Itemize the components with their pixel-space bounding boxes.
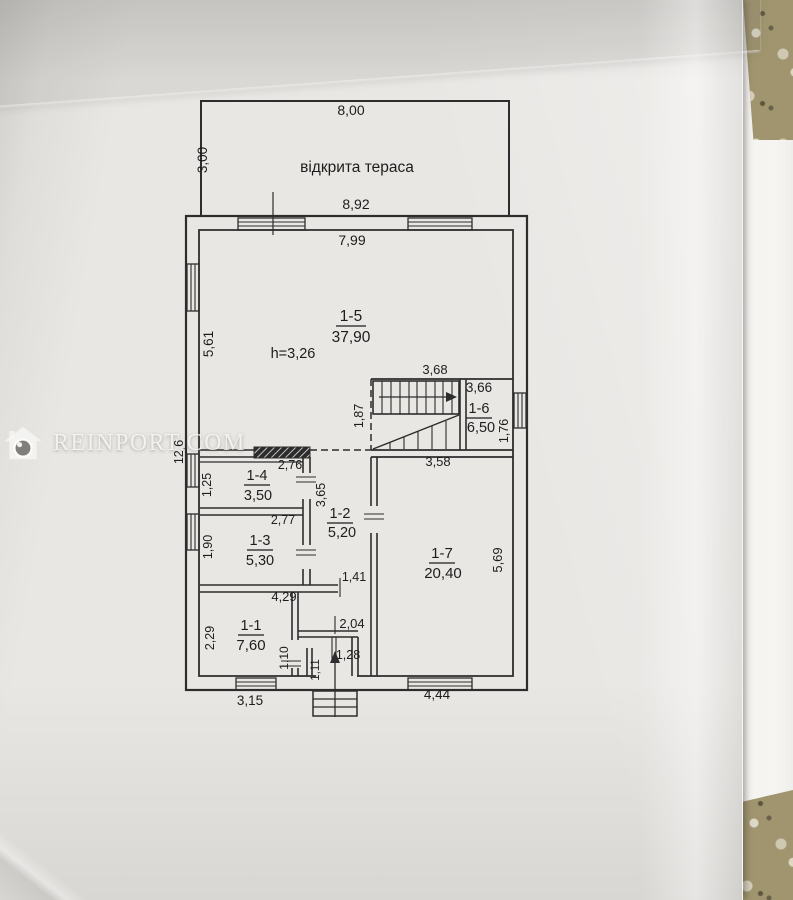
- room-1-6-area: 6,50: [467, 420, 495, 436]
- dim-r17-right: 5,69: [490, 547, 505, 572]
- room-1-2-area: 5,20: [328, 525, 356, 541]
- room-1-7-area: 20,40: [424, 565, 462, 582]
- dim-left-height: 5,61: [201, 331, 216, 357]
- watermark-text: REINPORT.COM: [53, 430, 246, 457]
- room-1-4-id: 1-4: [247, 468, 268, 484]
- dim-inner-top: 7,99: [338, 232, 365, 248]
- room-1-5-area: 37,90: [332, 329, 371, 346]
- room-1-3-id: 1-3: [250, 533, 271, 549]
- dim-r13-top: 2,77: [271, 513, 295, 527]
- dim-r12-bottom: 1,41: [342, 570, 366, 584]
- dim-r17-bottom: 4,44: [424, 687, 451, 702]
- dim-r12-left: 3,65: [314, 483, 328, 507]
- dim-terrace-bottom: 8,92: [342, 196, 369, 212]
- dim-entry-door: 1,28: [336, 648, 360, 662]
- dim-r14-top: 2,76: [278, 458, 302, 472]
- watermark: REINPORT.COM: [2, 426, 246, 460]
- photographed-floor-plan: 8,00 3,00 відкрита тераса 8,92 7,99 5,61…: [0, 0, 793, 900]
- dim-terrace-left: 3,00: [195, 147, 210, 173]
- dim-terrace-top: 8,00: [337, 102, 364, 118]
- room-1-1-id: 1-1: [241, 618, 262, 634]
- dim-r11-bottom: 3,15: [237, 693, 263, 708]
- watermark-house-icon: [2, 426, 44, 460]
- dim-r11-left: 2,29: [203, 626, 217, 650]
- dim-r13-left: 1,90: [201, 535, 215, 559]
- dim-r11-top: 4,29: [271, 589, 296, 604]
- dim-r16-width: 3,66: [466, 380, 492, 395]
- room-1-3-area: 5,30: [246, 553, 274, 569]
- dim-stairs-left: 1,87: [352, 404, 366, 428]
- dim-r17-top: 3,58: [425, 454, 450, 469]
- dim-r16-right: 1,76: [497, 419, 511, 443]
- dim-r14-left: 1,25: [200, 473, 214, 497]
- room-1-5-height-note: h=3,26: [271, 346, 316, 362]
- room-1-2-id: 1-2: [330, 506, 351, 522]
- terrace-name: відкрита тераса: [300, 159, 414, 176]
- dim-r11-door: 1,10: [277, 646, 291, 670]
- room-1-5-id: 1-5: [340, 308, 362, 325]
- room-1-6-id: 1-6: [469, 401, 490, 417]
- room-1-7-id: 1-7: [431, 545, 453, 562]
- room-1-4-area: 3,50: [244, 488, 272, 504]
- dim-entry-top: 2,04: [339, 616, 364, 631]
- room-1-1-area: 7,60: [236, 637, 265, 654]
- dim-stairs-top: 3,68: [422, 362, 447, 377]
- dim-entry-left: 1,11: [310, 659, 322, 681]
